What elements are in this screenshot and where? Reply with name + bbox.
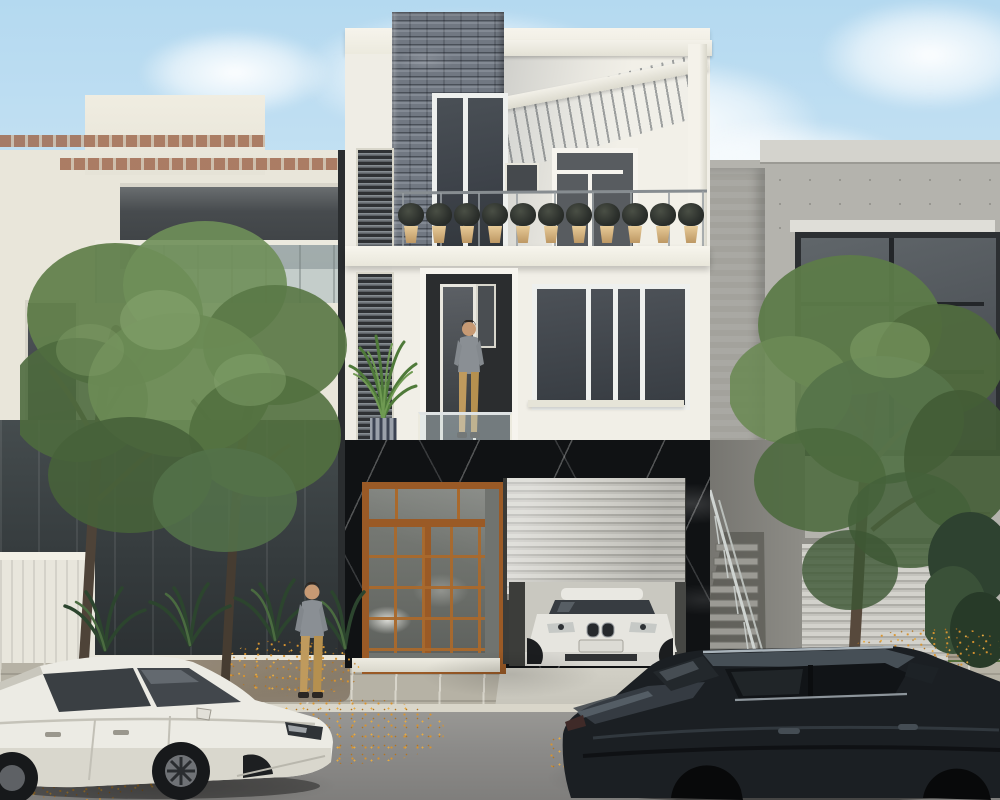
window-pane [537, 289, 586, 405]
window-sill [528, 400, 684, 407]
planter-foliage [510, 203, 536, 226]
door-transom-muntin [395, 489, 398, 519]
brick-trim-band [0, 135, 265, 147]
planter-foliage [538, 203, 564, 226]
planter-foliage [622, 203, 648, 226]
dark-sedan [553, 638, 1000, 800]
planter-foliage [650, 203, 676, 226]
brick-trim-band [60, 158, 345, 170]
door-muntins [369, 527, 485, 653]
planter-foliage [566, 203, 592, 226]
window-pane [645, 289, 685, 405]
cloud [820, 0, 1000, 110]
window-pane [618, 289, 640, 405]
planter-foliage [426, 203, 452, 226]
planter-foliage [398, 203, 424, 226]
louver-panel-top [356, 148, 394, 252]
shutter-light-sweep [507, 478, 685, 598]
planter-foliage [454, 203, 480, 226]
balcony-ledge-slab [345, 246, 710, 266]
render-canvas: Photorealistic daytime architectural ren… [0, 0, 1000, 800]
door-transom-muntin [457, 489, 460, 519]
marble-pillar [686, 440, 710, 668]
middle-floor-window [532, 284, 690, 410]
planter-foliage [678, 203, 704, 226]
pergola-beam-back [498, 40, 712, 56]
white-sedan [0, 628, 337, 800]
planter-foliage [594, 203, 620, 226]
window-pane [591, 289, 613, 405]
timber-entry-door [362, 482, 506, 674]
right-building-roof-slab [760, 140, 1000, 164]
planter-foliage [482, 203, 508, 226]
